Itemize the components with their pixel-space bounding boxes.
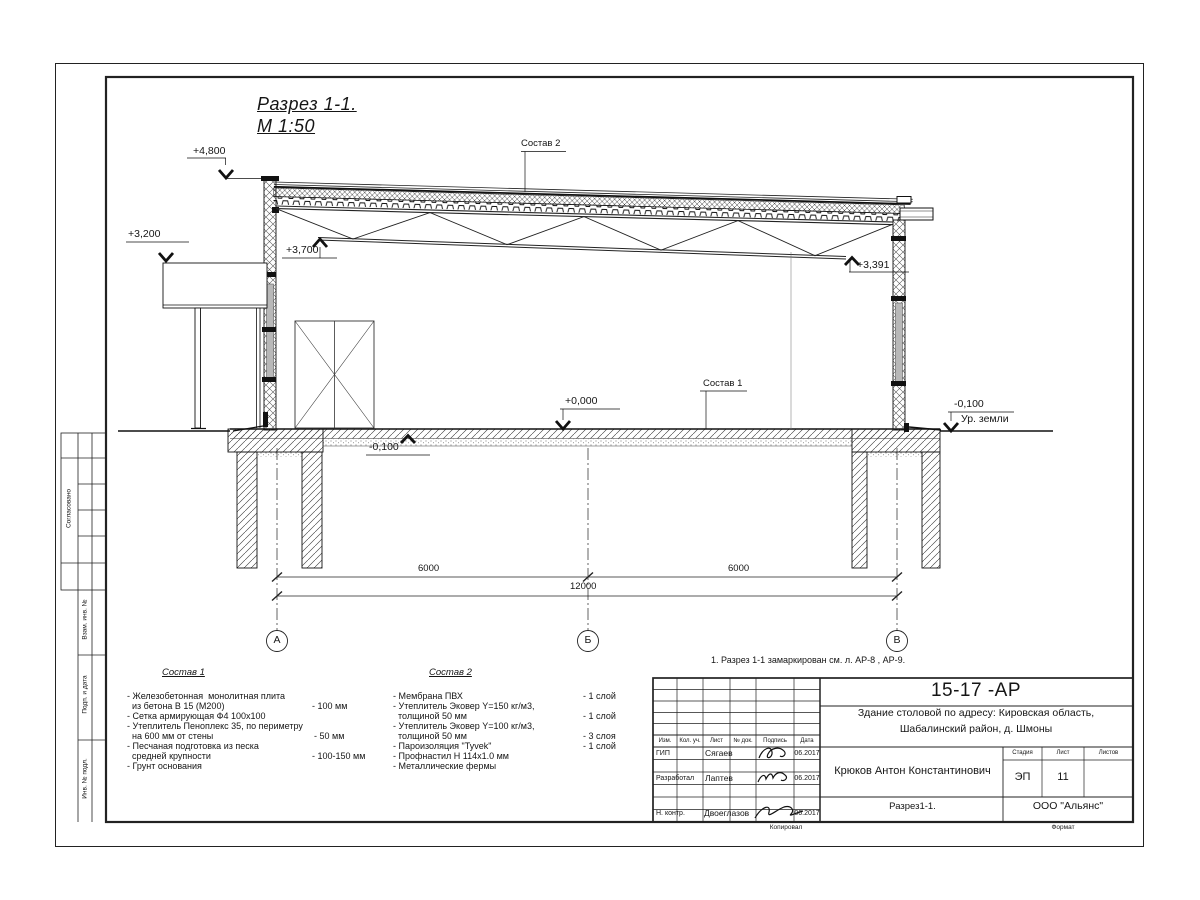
footer-copied: Копировал bbox=[750, 824, 822, 831]
axis-bubble-b: Б bbox=[581, 635, 595, 647]
col-sign: Подпись bbox=[756, 738, 794, 745]
axis-bubble-a: А bbox=[270, 635, 284, 647]
signatures bbox=[755, 748, 803, 818]
elevation-label-m0100-right: -0,100 bbox=[954, 399, 984, 411]
roof-fascia bbox=[900, 208, 933, 220]
project-name-line2: Шабалинский район, д. Шмоны bbox=[826, 724, 1126, 736]
view-title-line2: М 1:50 bbox=[257, 117, 315, 137]
row-name: Лаптев bbox=[705, 774, 733, 783]
stage-header: Стадия bbox=[1003, 750, 1042, 757]
elevation-label-4800: +4,800 bbox=[193, 146, 225, 158]
row-role: Разработал bbox=[656, 775, 694, 783]
architect-name: Крюков Антон Константинович bbox=[822, 765, 1003, 777]
col-kol: Кол. уч. bbox=[677, 738, 703, 745]
col-izm: Изм. bbox=[653, 738, 677, 745]
sheets-header: Листов bbox=[1084, 750, 1133, 757]
interior-door bbox=[295, 321, 374, 428]
canopy-column bbox=[195, 308, 201, 428]
elevation-label-3700: +3,700 bbox=[286, 245, 318, 257]
row-date: 06.2017 bbox=[794, 810, 820, 818]
dim-span1: 6000 bbox=[418, 564, 439, 574]
side-stamp-agreed: Согласовано bbox=[66, 464, 73, 554]
ground-level-label: Ур. земли bbox=[961, 414, 1009, 426]
side-stamp-podp: Подп. и дата bbox=[82, 650, 89, 740]
entrance-canopy bbox=[163, 263, 267, 429]
footer-format: Формат bbox=[1030, 824, 1096, 831]
signature-razrabotal bbox=[758, 773, 786, 782]
signature-gip bbox=[759, 748, 785, 758]
row-role: ГИП bbox=[656, 750, 670, 758]
sheet-number-value: 11 bbox=[1042, 771, 1084, 783]
callout-sostav2: Состав 2 bbox=[521, 139, 560, 149]
dim-span2: 6000 bbox=[728, 564, 749, 574]
legend1-title: Состав 1 bbox=[162, 668, 205, 678]
row-name: Сягаев bbox=[705, 749, 733, 758]
legend1-row-value: - 100-150 мм bbox=[312, 752, 365, 762]
elevation-label-3200: +3,200 bbox=[128, 229, 160, 241]
elevation-label-3391: +3,391 bbox=[857, 260, 889, 272]
right-wall-window bbox=[896, 303, 903, 382]
project-name-line1: Здание столовой по адресу: Кировская обл… bbox=[826, 708, 1126, 720]
drawing-name: Разрез1-1. bbox=[822, 802, 1003, 812]
roof-buildup bbox=[273, 182, 912, 222]
col-list: Лист bbox=[703, 738, 730, 745]
row-role: Н. контр. bbox=[656, 810, 685, 818]
legend2-title: Состав 2 bbox=[429, 668, 472, 678]
side-stamp-inv: Инв. № подл. bbox=[82, 734, 89, 824]
callout-sostav1: Состав 1 bbox=[703, 379, 742, 389]
legend2-row-value: - 1 слой bbox=[583, 742, 616, 752]
doc-number: 15-17 -АР bbox=[826, 681, 1126, 702]
row-name: Двоеглазов bbox=[704, 809, 749, 818]
sheet-header: Лист bbox=[1042, 750, 1084, 757]
row-date: 06.2017 bbox=[794, 750, 820, 758]
view-title-line1: Разрез 1-1. bbox=[257, 95, 357, 115]
legend1-row-text: - Грунт основания bbox=[127, 762, 202, 772]
stage-value: ЭП bbox=[1003, 771, 1042, 783]
legend2-row-text: - Металлические фермы bbox=[393, 762, 496, 772]
dimensions bbox=[267, 448, 908, 652]
axis-bubble-v: В bbox=[890, 635, 904, 647]
col-date: Дата bbox=[794, 738, 820, 745]
sheet-note: 1. Разрез 1-1 замаркирован см. л. АР-8 ,… bbox=[711, 656, 905, 666]
row-date: 06.2017 bbox=[794, 775, 820, 783]
elevation-label-0000: +0,000 bbox=[565, 396, 597, 408]
dim-total: 12000 bbox=[570, 582, 596, 592]
section-view bbox=[118, 176, 1053, 568]
legend2-row-value: - 1 слой bbox=[583, 692, 616, 702]
legend1-row-value: - 50 мм bbox=[314, 732, 344, 742]
company-name: ООО "Альянс" bbox=[1003, 801, 1133, 813]
col-doc: № док. bbox=[730, 738, 756, 745]
legend1-row-value: - 100 мм bbox=[312, 702, 347, 712]
legend2-row-value: - 1 слой bbox=[583, 712, 616, 722]
drawing-sheet: Разрез 1-1. М 1:50 +4,800 +3,200 +3,700 … bbox=[0, 0, 1200, 900]
elevation-label-m0100-left: -0,100 bbox=[369, 442, 399, 454]
